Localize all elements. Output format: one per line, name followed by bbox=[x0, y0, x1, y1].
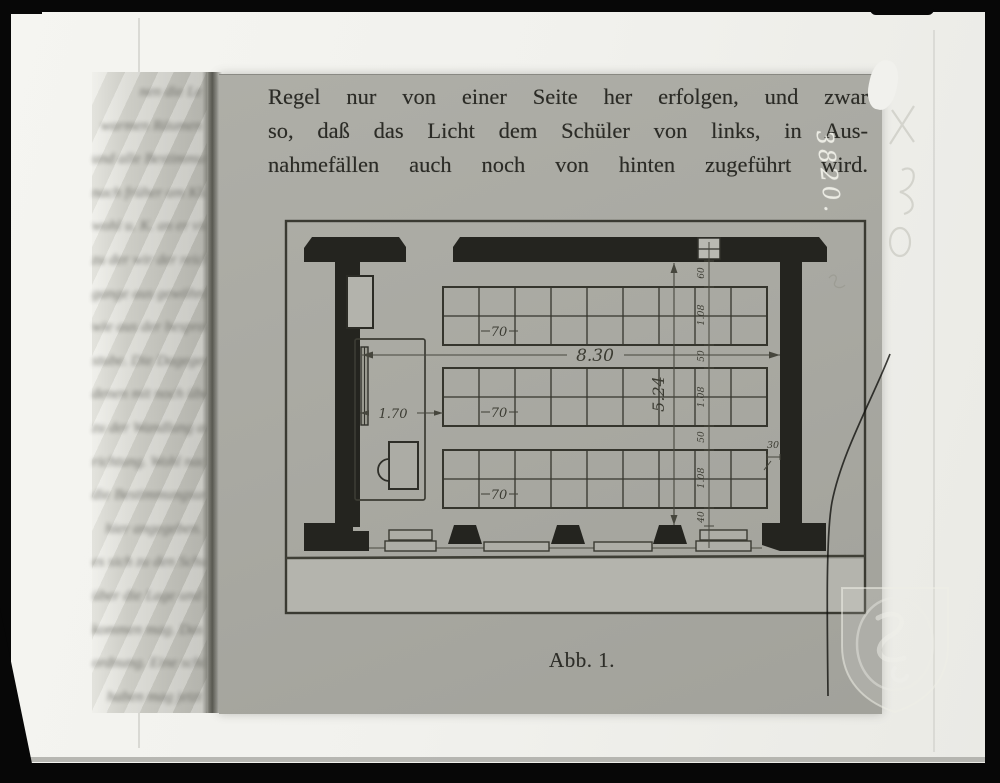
chain-value: 1.08 bbox=[696, 467, 707, 488]
chain-value: 50 bbox=[697, 350, 707, 362]
window-pier bbox=[448, 525, 482, 544]
blurred-text-line: es sich zu den Schulen bbox=[92, 546, 207, 580]
blurred-text-line: nen die Le bbox=[92, 76, 207, 110]
blurred-text-line: warmen Räumen bbox=[92, 110, 207, 144]
chain-value: 60 bbox=[697, 267, 707, 279]
blurred-text-line: ordnung. Eine schön bbox=[92, 647, 207, 681]
film-edge-right bbox=[985, 0, 1000, 783]
blurred-text-line: nach früher am Klasse bbox=[92, 177, 207, 211]
pavement-band bbox=[286, 559, 865, 612]
right-wall bbox=[780, 261, 802, 527]
margin-pencil-marks bbox=[884, 92, 948, 292]
teacher-desk bbox=[389, 442, 418, 489]
desk-width-label: 70 bbox=[491, 325, 508, 340]
top-wall bbox=[453, 237, 827, 262]
teacher-chair bbox=[378, 459, 389, 481]
blurred-text-line: hier angegeben. bbox=[92, 513, 207, 547]
chain-value: 1.08 bbox=[696, 386, 707, 407]
microfilm-photo: nen die Lewarmen Räumenund alle Bestimmu… bbox=[0, 0, 1000, 783]
blurred-text-line: wohl u. K. an er vielen bbox=[92, 210, 207, 244]
left-page: nen die Lewarmen Räumenund alle Bestimmu… bbox=[92, 72, 207, 713]
desk-width-label: 70 bbox=[491, 406, 508, 421]
blurred-text-line: über die Lage und des bbox=[92, 580, 207, 614]
dimension-front-area: 1.70 bbox=[360, 407, 443, 422]
walls bbox=[304, 237, 827, 551]
figure-caption: Abb. 1. bbox=[534, 648, 630, 673]
blurred-text-line: denen mit noch über bbox=[92, 378, 207, 412]
stove bbox=[347, 276, 373, 328]
blurred-text-column: nen die Lewarmen Räumenund alle Bestimmu… bbox=[92, 76, 207, 714]
film-edge-top bbox=[0, 0, 1000, 12]
front-area-value: 1.70 bbox=[379, 407, 408, 422]
chain-value: 1.08 bbox=[696, 304, 707, 325]
film-bottom-shadow bbox=[8, 757, 987, 762]
desk-blocks bbox=[443, 287, 767, 508]
blurred-text-line: zu der Wandlung ausge- bbox=[92, 412, 207, 446]
blurred-text-line: gange aus gewöhnliche bbox=[92, 278, 207, 312]
pencil-doodle bbox=[829, 275, 845, 288]
blurred-text-line: kommen mag. Das bbox=[92, 614, 207, 648]
paragraph: Regel nur von einer Seite her erfolgen, … bbox=[268, 80, 868, 182]
blurred-text-line: die Bestimmungsungen bbox=[92, 479, 207, 513]
chain-value: 50 bbox=[697, 431, 707, 443]
side-gap-value: 30 bbox=[767, 440, 779, 451]
left-pilaster-cap bbox=[304, 237, 406, 262]
window-pier bbox=[551, 525, 585, 544]
blurred-text-line: haben mag jetzt bbox=[92, 681, 207, 715]
room-depth-value: 5.24 bbox=[649, 376, 668, 412]
paragraph-line: so, daß das Licht dem Schüler von links,… bbox=[268, 114, 868, 148]
dimension-room-depth: 5.24 bbox=[649, 263, 678, 525]
blurred-text-line: stube. Die Dagegenwohl bbox=[92, 345, 207, 379]
paragraph-line: Regel nur von einer Seite her erfolgen, … bbox=[268, 80, 868, 114]
floor-plan-figure: 70 70 70 8.30 1.70 5.24 bbox=[283, 218, 868, 618]
film-edge-notch bbox=[870, 0, 934, 15]
chain-value: 40 bbox=[697, 511, 707, 524]
outer-wall-face-line bbox=[286, 556, 865, 558]
desk-width-label: 70 bbox=[491, 488, 508, 503]
film-edge-bottom bbox=[0, 763, 1000, 783]
blurred-text-line: richtung. Wohl nach all- bbox=[92, 446, 207, 480]
paragraph-line: nahmefällen auch noch von hinten zugefüh… bbox=[268, 148, 868, 182]
blurred-text-line: wie aus der besprechende bbox=[92, 311, 207, 345]
blurred-text-line: zu der wir der reicher bbox=[92, 244, 207, 278]
watermark-stamp bbox=[828, 580, 960, 720]
window-pier bbox=[653, 525, 687, 544]
window-wall-corner-pier-left bbox=[304, 523, 369, 551]
room-width-value: 8.30 bbox=[576, 346, 614, 366]
blurred-text-line: und alle Bestimmung bbox=[92, 143, 207, 177]
